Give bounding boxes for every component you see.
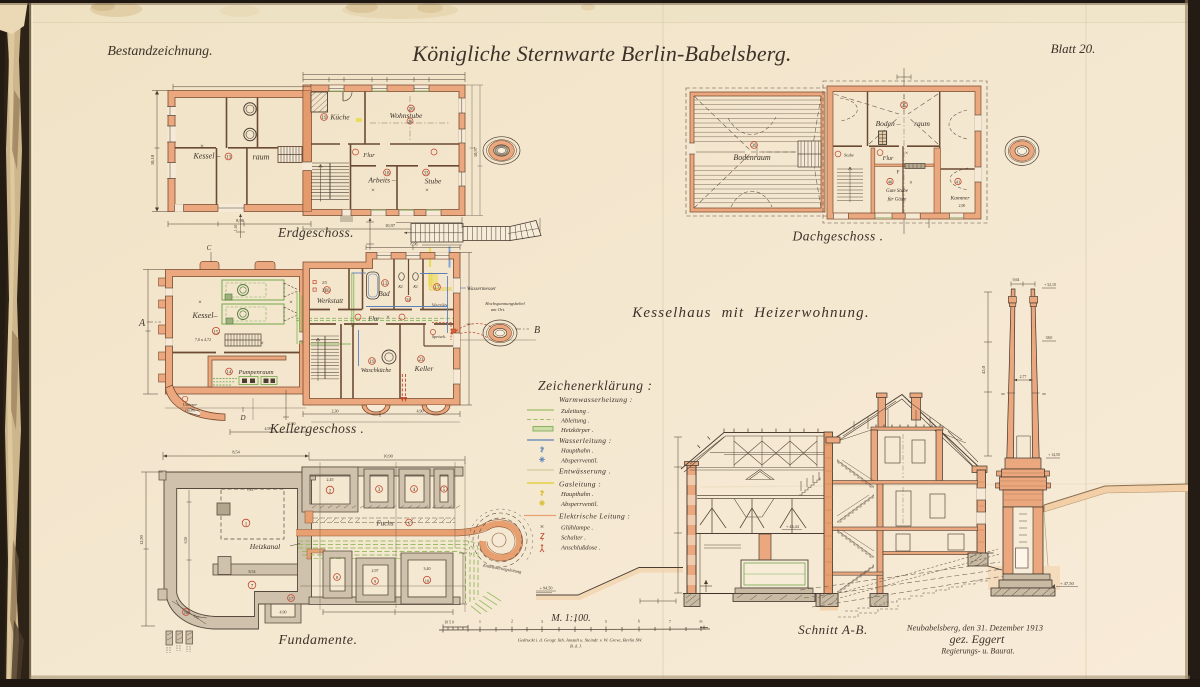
svg-text:Anschlußdose .: Anschlußdose .	[560, 545, 601, 552]
svg-text:4: 4	[574, 620, 576, 624]
svg-text:×: ×	[909, 181, 912, 187]
svg-text:Keller: Keller	[414, 364, 434, 373]
svg-text:Warmwasserheizung :: Warmwasserheizung :	[559, 395, 633, 404]
svg-text:Werkstatt: Werkstatt	[317, 297, 344, 305]
svg-text:15: 15	[214, 330, 220, 335]
svg-text:Zuleitung .: Zuleitung .	[561, 408, 590, 415]
svg-text:Heizkörper .: Heizkörper .	[560, 427, 594, 434]
svg-text:13: 13	[226, 156, 232, 161]
svg-text:3: 3	[541, 620, 543, 624]
svg-text:Waschküche: Waschküche	[361, 367, 392, 374]
svg-text:×: ×	[198, 299, 202, 306]
svg-text:Gute Stube: Gute Stube	[886, 189, 909, 194]
svg-text:Regierungs- u. Baurat.: Regierungs- u. Baurat.	[940, 647, 1014, 656]
svg-text:Vorräte: Vorräte	[432, 303, 449, 309]
svg-text:×: ×	[200, 143, 204, 150]
svg-text:Ableitung .: Ableitung .	[560, 418, 590, 425]
svg-text:Absperrventil.: Absperrventil.	[560, 458, 598, 465]
svg-text:Haupthahn .: Haupthahn .	[560, 491, 594, 498]
svg-text:raum: raum	[185, 408, 195, 413]
svg-text:Wasserleitung :: Wasserleitung :	[559, 436, 612, 445]
svg-text:Kesselhaus mit Heizerwohnung: Kesselhaus mit Heizerwohnung.	[631, 305, 870, 321]
svg-text:Schnitt A-B.: Schnitt A-B.	[798, 622, 868, 637]
svg-text:14: 14	[227, 371, 233, 376]
svg-text:Neubabelsberg, den 31. Dezembe: Neubabelsberg, den 31. Dezember 1913	[906, 623, 1043, 633]
svg-text:34: 34	[406, 297, 410, 302]
svg-text:×: ×	[371, 187, 375, 194]
svg-text:Wassermesser: Wassermesser	[467, 286, 497, 292]
svg-text:19: 19	[370, 360, 376, 365]
svg-text:Flur: Flur	[882, 156, 894, 162]
svg-text:Haupthahn .: Haupthahn .	[560, 448, 594, 455]
svg-text:am Ort.: am Ort.	[491, 307, 505, 312]
svg-text:Absperrventil.: Absperrventil.	[560, 501, 598, 508]
svg-text:41: 41	[956, 180, 961, 185]
svg-text:C: C	[207, 244, 212, 252]
svg-text:Glühlampe .: Glühlampe .	[561, 525, 594, 532]
svg-text:80: 80	[1042, 392, 1046, 396]
svg-text:Kessel–: Kessel–	[192, 311, 219, 320]
svg-text:2/5: 2/5	[322, 288, 327, 293]
svg-text:Stube: Stube	[425, 177, 442, 186]
svg-text:13: 13	[383, 282, 389, 287]
svg-text:35: 35	[902, 104, 908, 109]
svg-text:Wohnstube: Wohnstube	[390, 111, 423, 120]
svg-text:26: 26	[408, 119, 413, 124]
svg-text:17: 17	[435, 286, 441, 291]
svg-text:2: 2	[511, 620, 513, 624]
svg-text:Elektrische Leitung :: Elektrische Leitung :	[558, 512, 630, 521]
svg-text:10: 10	[425, 578, 430, 583]
svg-text:A: A	[138, 318, 146, 329]
svg-text:×: ×	[425, 187, 429, 194]
svg-text:Unterer: Unterer	[183, 402, 198, 407]
svg-text:Kl.: Kl.	[397, 284, 403, 289]
svg-text:1: 1	[479, 620, 481, 624]
svg-text:gez. Eggert: gez. Eggert	[950, 632, 1005, 646]
svg-text:5: 5	[605, 620, 607, 624]
svg-text:Kl.: Kl.	[412, 284, 418, 289]
svg-text:19: 19	[322, 116, 328, 121]
svg-text:Heizkanal: Heizkanal	[249, 542, 280, 551]
svg-text:20: 20	[409, 108, 415, 113]
svg-text:raum: raum	[253, 153, 270, 162]
svg-text:Stube: Stube	[844, 153, 854, 158]
svg-text:Kammer: Kammer	[950, 196, 971, 202]
svg-text:Königliche Sternwarte Berlin-B: Königliche Sternwarte Berlin-Babelsberg.	[411, 41, 791, 66]
svg-text:10 5 0: 10 5 0	[444, 621, 454, 625]
svg-text:D: D	[239, 414, 245, 422]
svg-text:Pumpenraum: Pumpenraum	[237, 369, 273, 376]
svg-text:80: 80	[1001, 392, 1005, 396]
svg-text:Bodenraum: Bodenraum	[733, 153, 771, 162]
svg-text:Küche: Küche	[329, 113, 350, 122]
svg-text:M. 1:100.: M. 1:100.	[550, 613, 590, 624]
svg-text:Flur: Flur	[367, 316, 380, 323]
svg-text:6: 6	[638, 620, 640, 624]
svg-text:Kellergeschoss .: Kellergeschoss .	[269, 421, 364, 436]
svg-text:B: B	[534, 325, 540, 336]
svg-text:×: ×	[289, 299, 293, 306]
svg-text:Gasleitung :: Gasleitung :	[559, 480, 601, 489]
svg-text:18: 18	[385, 172, 391, 177]
svg-text:Kessel –: Kessel –	[193, 152, 222, 161]
svg-text:×: ×	[540, 522, 544, 531]
svg-text:F: F	[897, 171, 900, 176]
svg-text:17: 17	[289, 596, 294, 601]
svg-text:23: 23	[419, 358, 425, 363]
svg-text:Dachgeschoss .: Dachgeschoss .	[792, 229, 884, 244]
svg-text:Blatt 20.: Blatt 20.	[1051, 41, 1096, 56]
svg-text:Fundamente.: Fundamente.	[278, 633, 358, 648]
svg-text:Hochspannungshebel: Hochspannungshebel	[484, 301, 525, 306]
svg-text:Entwässerung .: Entwässerung .	[558, 467, 611, 476]
svg-text:×: ×	[905, 151, 908, 157]
svg-text:für Gäste: für Gäste	[888, 198, 908, 203]
svg-text:2/5: 2/5	[322, 280, 327, 285]
svg-text:Schalter .: Schalter .	[561, 535, 586, 542]
svg-text:B. d. J.: B. d. J.	[570, 644, 582, 649]
svg-text:Bad: Bad	[378, 290, 390, 298]
svg-text:raum: raum	[914, 119, 930, 128]
svg-text:×: ×	[386, 315, 389, 321]
svg-text:Fuchs: Fuchs	[375, 520, 393, 528]
svg-text:7: 7	[669, 620, 671, 624]
svg-text:Flur: Flur	[362, 152, 375, 159]
svg-text:Zeichenerklärung :: Zeichenerklärung :	[538, 378, 653, 393]
svg-text:Erdgeschoss.: Erdgeschoss.	[277, 225, 354, 240]
svg-text:33: 33	[424, 172, 430, 177]
svg-text:Boden –: Boden –	[876, 119, 901, 128]
svg-text:40: 40	[888, 180, 893, 185]
svg-text:39: 39	[752, 144, 758, 149]
svg-text:m: m	[700, 620, 703, 624]
svg-text:Arbeits –: Arbeits –	[367, 176, 396, 185]
svg-text:Bestandzeichnung.: Bestandzeichnung.	[107, 44, 212, 59]
